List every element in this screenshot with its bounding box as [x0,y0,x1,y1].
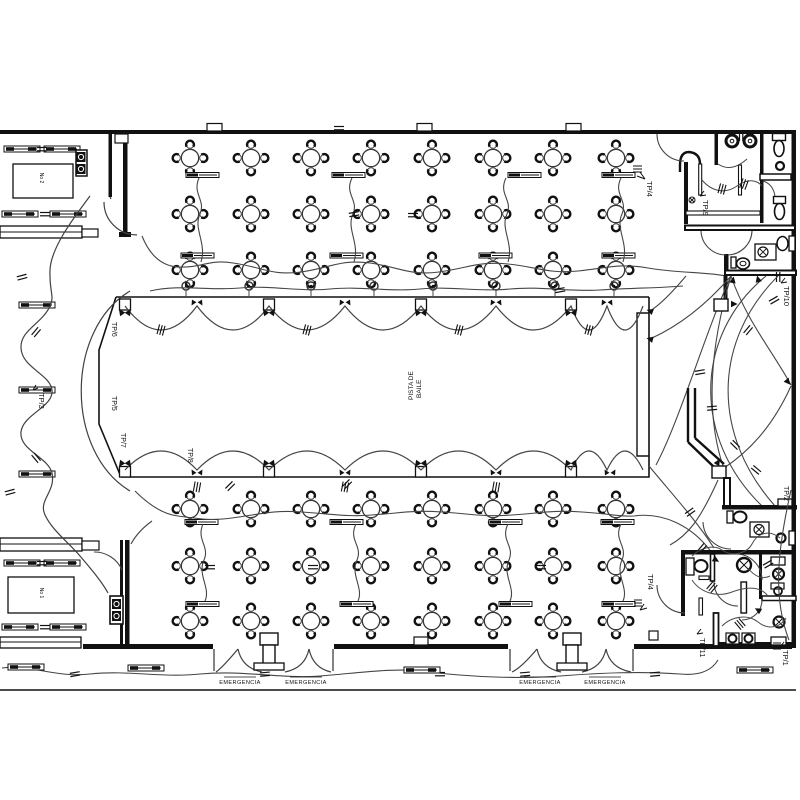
svg-text:No 1: No 1 [38,588,44,599]
svg-text:TP/11: TP/11 [698,638,707,657]
svg-text:TP/10: TP/10 [782,286,791,306]
svg-text:TP/6: TP/6 [110,322,117,337]
svg-text:TP/4: TP/4 [645,181,654,197]
svg-text:TP/5: TP/5 [110,396,117,411]
svg-text:EMERGENCIA: EMERGENCIA [519,680,561,686]
svg-text:TP/8: TP/8 [186,448,193,463]
svg-text:EMERGENCIA: EMERGENCIA [219,680,261,686]
svg-text:PISTA DE: PISTA DE [408,371,415,400]
svg-text:EMERGENCIA: EMERGENCIA [285,680,327,686]
svg-text:TP/7: TP/7 [119,433,126,448]
svg-text:TP/3: TP/3 [37,393,46,409]
svg-text:TP/9: TP/9 [701,200,710,216]
svg-text:TP/4: TP/4 [646,574,655,590]
svg-text:TP/2: TP/2 [782,486,789,501]
svg-text:No 2: No 2 [38,173,44,184]
svg-text:EMERGENCIA: EMERGENCIA [584,680,626,686]
svg-text:BAILE: BAILE [416,379,423,398]
svg-text:TP/1: TP/1 [781,650,790,666]
